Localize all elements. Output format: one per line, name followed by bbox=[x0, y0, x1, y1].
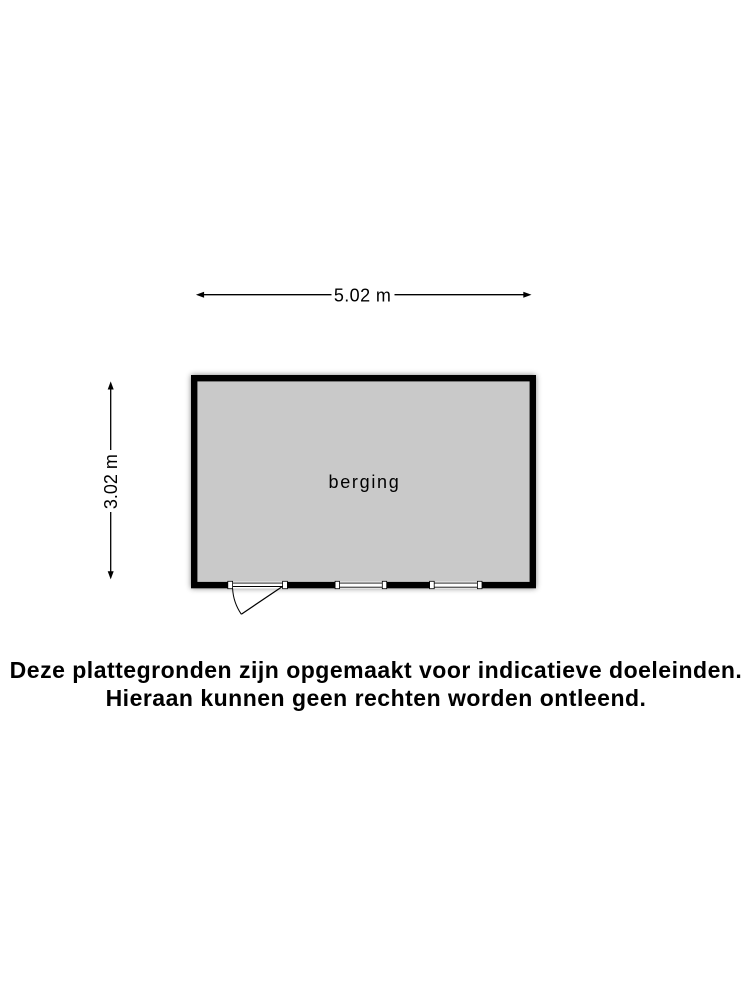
svg-text:Deze plattegronden zijn opgema: Deze plattegronden zijn opgemaakt voor i… bbox=[10, 657, 743, 683]
svg-text:berging: berging bbox=[329, 472, 401, 492]
svg-text:3.02 m: 3.02 m bbox=[101, 454, 121, 509]
svg-text:5.02 m: 5.02 m bbox=[334, 286, 391, 306]
svg-text:Hieraan kunnen geen rechten wo: Hieraan kunnen geen rechten worden ontle… bbox=[106, 685, 647, 711]
